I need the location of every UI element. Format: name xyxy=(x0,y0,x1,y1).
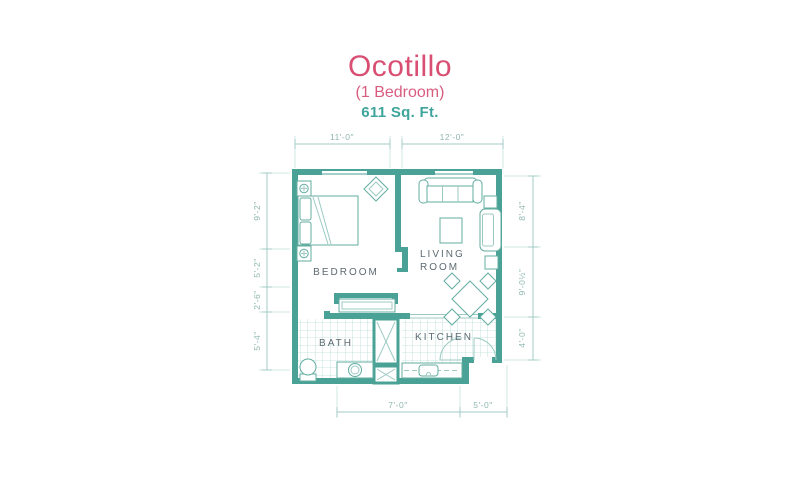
dim-right-3: 4'-0" xyxy=(517,328,527,347)
bedroom-label: BEDROOM xyxy=(313,267,379,278)
shower-column xyxy=(374,319,398,383)
armchair xyxy=(480,209,501,251)
corner-chair xyxy=(364,177,388,201)
dim-top-right: 12'-0" xyxy=(440,132,465,142)
dining-set xyxy=(444,273,496,325)
toilet xyxy=(300,359,316,375)
side-table xyxy=(485,256,498,269)
sofa-arm xyxy=(473,180,482,203)
end-table xyxy=(484,196,497,208)
bath-fixtures xyxy=(300,359,373,381)
dining-chair xyxy=(444,273,460,289)
bath-sink xyxy=(349,364,362,377)
dining-table xyxy=(452,281,488,317)
pillow xyxy=(300,198,311,220)
kitchen-sink xyxy=(419,365,438,376)
dim-left-1: 9'-2" xyxy=(252,201,262,220)
kitchen-label: KITCHEN xyxy=(415,332,473,343)
bath-label: BATH xyxy=(319,338,353,349)
pillow xyxy=(300,222,311,244)
closet-dresser xyxy=(339,299,395,312)
closet-wall xyxy=(334,293,398,298)
bedroom-furniture xyxy=(297,177,395,312)
floor-plan-svg: BEDROOM LIVING ROOM BATH KITCHEN 11'-0" xyxy=(0,0,800,500)
dim-bottom-right: 5'-0" xyxy=(473,400,492,410)
living-room-label-line1: LIVING xyxy=(420,249,465,260)
dim-left-4: 5'-4" xyxy=(252,331,262,350)
dim-right-2: 9'-0½" xyxy=(517,268,527,295)
sofa-seat xyxy=(427,186,473,202)
dim-top-left: 11'-0" xyxy=(330,132,354,142)
floorplan-page: Ocotillo (1 Bedroom) 611 Sq. Ft. xyxy=(0,0,800,500)
dim-left-2: 5'-2" xyxy=(252,258,262,277)
dining-chair xyxy=(480,273,496,289)
bedroom-divider-wall xyxy=(395,175,401,247)
dim-right-1: 8'-4" xyxy=(517,201,527,220)
coffee-table xyxy=(440,218,462,243)
dim-bottom-left: 7'-0" xyxy=(388,400,407,410)
left-wall xyxy=(292,169,298,384)
living-room-label-line2: ROOM xyxy=(420,262,459,273)
dim-left-3: 2'-6" xyxy=(252,290,262,309)
